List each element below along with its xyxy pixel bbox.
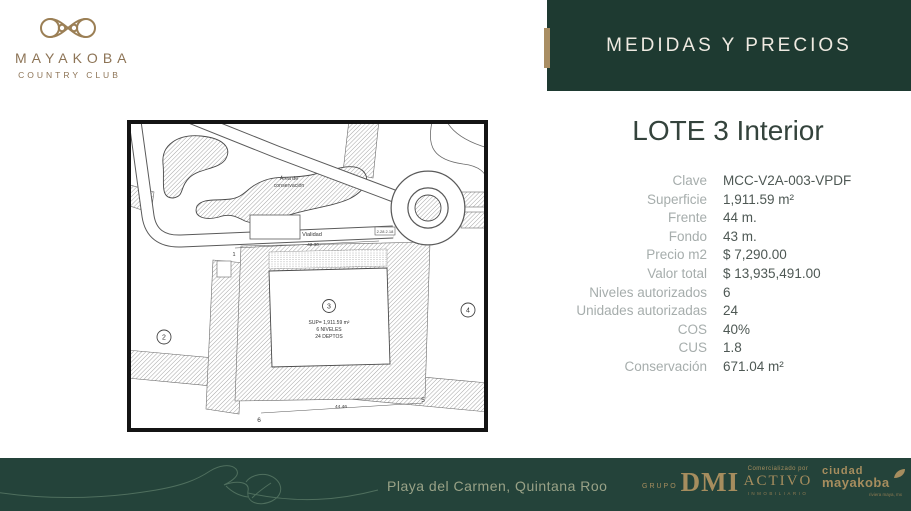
marker-6: 6 — [257, 417, 261, 424]
gold-accent-bar — [544, 28, 550, 68]
section-banner: MEDIDAS Y PRECIOS — [547, 0, 911, 91]
cul-de-sac — [400, 180, 457, 237]
marker-5: 5 — [421, 397, 425, 404]
grupo-dmi-logo: GRUPO DMI — [642, 468, 739, 496]
spec-label: Valor total — [545, 265, 707, 284]
spec-value: 1,911.59 m² — [723, 191, 794, 210]
lot3-superficie: SUP= 1,911.59 m² — [309, 320, 350, 326]
spec-label: Frente — [545, 209, 707, 228]
lot4-number: 4 — [466, 308, 470, 315]
spec-row: Conservación671.04 m² — [545, 358, 905, 377]
spec-label: Superficie — [545, 191, 707, 210]
spec-row: ClaveMCC-V2A-003-VPDF — [545, 172, 905, 191]
conservation-label-line1: Área de — [280, 175, 298, 182]
spec-label: Niveles autorizados — [545, 284, 707, 303]
activo-label: ACTIVO — [740, 473, 816, 490]
spec-value: 6 — [723, 284, 731, 303]
bottom-dim-label: 44.46 — [335, 404, 347, 410]
east-strip-b — [461, 212, 488, 228]
spec-row: Niveles autorizados6 — [545, 284, 905, 303]
lot3-deptos: 24 DEPTOS — [315, 334, 343, 340]
spec-row: CUS1.8 — [545, 339, 905, 358]
section-title: MEDIDAS Y PRECIOS — [606, 35, 852, 57]
spec-value: 44 m. — [723, 209, 757, 228]
spec-value: 671.04 m² — [723, 358, 784, 377]
lot2-badge: 2 — [157, 330, 171, 344]
spec-value: $ 13,935,491.00 — [723, 265, 821, 284]
lot3-buildable-area — [269, 268, 390, 367]
infinity-knot-icon — [36, 10, 100, 46]
lot3-niveles: 6 NIVELES — [316, 327, 342, 333]
spec-value: 43 m. — [723, 228, 757, 247]
spec-value: MCC-V2A-003-VPDF — [723, 172, 851, 191]
spec-table: ClaveMCC-V2A-003-VPDF Superficie1,911.59… — [545, 172, 905, 377]
lot2-number: 2 — [162, 335, 166, 342]
site-plan: Área de conservación 2.28 2.18 Vialidad … — [127, 120, 488, 432]
mayakoba-text: mayakoba — [822, 475, 890, 490]
spec-label: Clave — [545, 172, 707, 191]
footer: Playa del Carmen, Quintana Roo GRUPO DMI… — [0, 458, 911, 511]
spec-value: 40% — [723, 321, 750, 340]
spec-row: Valor total$ 13,935,491.00 — [545, 265, 905, 284]
conservation-label-line2: conservación — [274, 183, 305, 189]
marker-1: 1 — [232, 252, 235, 258]
brand-logo: MAYAKOBA COUNTRY CLUB — [10, 10, 126, 80]
dmi-label: DMI — [681, 468, 740, 496]
spec-row: COS40% — [545, 321, 905, 340]
cul-de-sac-island — [415, 195, 441, 221]
spec-row: Fondo43 m. — [545, 228, 905, 247]
footer-location: Playa del Carmen, Quintana Roo — [387, 478, 607, 494]
divider-notch — [217, 261, 231, 277]
leaf-line-art — [0, 458, 380, 511]
small-leaf-icon — [893, 468, 906, 479]
brand-subtitle: COUNTRY CLUB — [10, 70, 126, 80]
lot3-number: 3 — [327, 304, 331, 311]
spec-label: Unidades autorizadas — [545, 302, 707, 321]
spec-label: Conservación — [545, 358, 707, 377]
lot3-badge: 3 — [323, 300, 336, 313]
small-dim-label: 2.28 2.18 — [377, 229, 394, 234]
road-label: Vialidad — [302, 232, 322, 238]
riviera-label: riviera maya, mx — [822, 489, 902, 500]
spec-value: 1.8 — [723, 339, 742, 358]
spec-label: CUS — [545, 339, 707, 358]
ciudad-mayakoba-logo: ciudad mayakoba riviera maya, mx — [822, 466, 902, 500]
lot3-setback-strip — [269, 249, 387, 269]
spec-label: Precio m2 — [545, 246, 707, 265]
activo-logo: Comercializado por ACTIVO INMOBILIARIO — [740, 466, 816, 496]
lot-title: LOTE 3 Interior — [545, 115, 911, 147]
activo-subline: INMOBILIARIO — [740, 491, 816, 496]
mayakoba-label: mayakoba — [822, 477, 902, 488]
road-dim-label: 42.30 — [307, 242, 319, 247]
spec-row: Superficie1,911.59 m² — [545, 191, 905, 210]
spec-label: COS — [545, 321, 707, 340]
spec-row: Precio m2$ 7,290.00 — [545, 246, 905, 265]
lot4-badge: 4 — [461, 303, 475, 317]
spec-row: Unidades autorizadas24 — [545, 302, 905, 321]
spec-value: 24 — [723, 302, 738, 321]
activo-tagline: Comercializado por — [740, 466, 816, 472]
grupo-label: GRUPO — [642, 483, 678, 490]
road-access-notch — [250, 215, 300, 239]
brand-name: MAYAKOBA — [10, 50, 126, 66]
spec-row: Frente44 m. — [545, 209, 905, 228]
spec-label: Fondo — [545, 228, 707, 247]
spec-value: $ 7,290.00 — [723, 246, 787, 265]
